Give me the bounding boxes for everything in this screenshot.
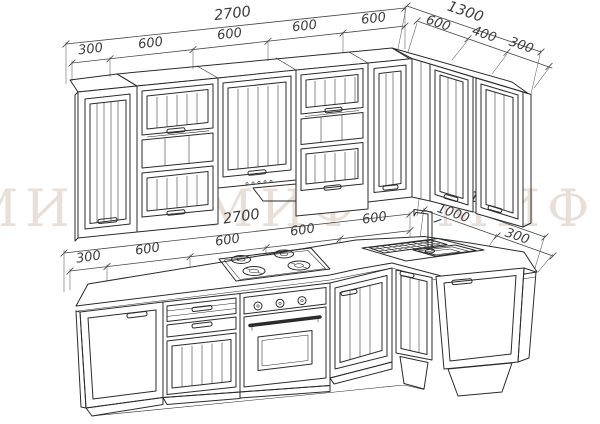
kitchen-technical-drawing: МИФ МИФ МИФ МИФ 2700 300 600 600 600 600… bbox=[0, 0, 600, 424]
dim-label: 600 bbox=[291, 18, 317, 36]
dim-label: 2700 bbox=[222, 207, 261, 228]
base-cabinet-drawers bbox=[163, 294, 240, 405]
hood-recess bbox=[253, 184, 296, 201]
dim-label: 600 bbox=[134, 240, 161, 258]
wall-cabinet-corner bbox=[368, 59, 430, 202]
wall-cabinet-flip-2 bbox=[296, 63, 368, 216]
wall-cabinet-flip-1 bbox=[137, 78, 218, 232]
dim-label: 600 bbox=[214, 231, 241, 249]
plinth bbox=[448, 363, 512, 396]
dim-label: 300 bbox=[75, 248, 102, 266]
base-cabinet-door bbox=[330, 268, 392, 384]
base-cabinet-angled-right bbox=[436, 268, 536, 396]
base-cabinet-angled-left bbox=[76, 302, 163, 416]
dim-label: 300 bbox=[77, 41, 103, 59]
dim-label: 600 bbox=[289, 221, 316, 239]
dim-label: 600 bbox=[424, 13, 452, 35]
dim-label: 2700 bbox=[213, 4, 251, 24]
dim-label: 600 bbox=[361, 209, 388, 227]
plinth bbox=[400, 357, 428, 390]
dim-label: 400 bbox=[470, 24, 498, 46]
wall-cabinet-angled-left bbox=[75, 86, 137, 241]
wall-cabinet-angled-right bbox=[476, 78, 531, 227]
technical-drawing-svg: 2700 300 600 600 600 600 1300 600 400 30… bbox=[0, 0, 600, 424]
oven bbox=[240, 283, 330, 398]
dim-label: 300 bbox=[503, 226, 531, 248]
dim-label: 600 bbox=[137, 35, 163, 53]
dim-label: 600 bbox=[216, 26, 242, 44]
dim-label: 600 bbox=[360, 10, 386, 28]
wall-cabinet-400 bbox=[430, 64, 473, 212]
sink-base-cabinet bbox=[396, 270, 432, 389]
wall-cabinet-hood bbox=[218, 70, 296, 201]
